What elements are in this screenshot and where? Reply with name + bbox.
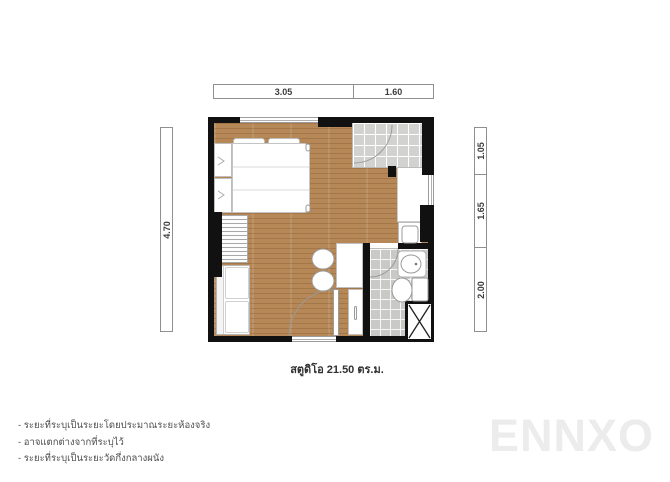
footnote-line: - อาจแตกต่างจากที่ระบุไว้	[18, 435, 210, 452]
dimension-left-1: 4.70	[161, 128, 172, 331]
dimension-top-1: 3.05	[214, 85, 353, 98]
plan-caption: สตูดิโอ 21.50 ตร.ม.	[207, 360, 467, 378]
dimension-right-3: 2.00	[475, 247, 486, 331]
bathroom-door-opening	[370, 243, 398, 249]
dimension-label: 1.05	[476, 142, 486, 160]
outer-wall	[208, 117, 434, 342]
balcony-door-opening	[292, 336, 336, 342]
floor-plan	[208, 117, 434, 342]
dimension-right-2: 1.65	[475, 174, 486, 247]
footnote-line: - ระยะที่ระบุเป็นระยะโดยประมาณระยะห้องจร…	[18, 418, 210, 435]
dimension-bar-left: 4.70	[160, 127, 173, 332]
dimension-label: 1.60	[385, 87, 403, 97]
dimension-bar-top: 3.05 1.60	[213, 84, 434, 99]
dimension-label: 2.00	[476, 281, 486, 299]
window-right	[428, 175, 434, 205]
dimension-label: 4.70	[162, 221, 172, 239]
service-shaft	[405, 301, 434, 342]
window-top	[240, 117, 318, 123]
footnotes: - ระยะที่ระบุเป็นระยะโดยประมาณระยะห้องจร…	[18, 418, 210, 468]
dimension-label: 3.05	[275, 87, 293, 97]
footnote-line: - ระยะที่ระบุเป็นระยะวัดกึ่งกลางผนัง	[18, 451, 210, 468]
dimension-right-1: 1.05	[475, 128, 486, 174]
dimension-label: 1.65	[476, 202, 486, 220]
dimension-bar-right: 1.05 1.65 2.00	[474, 127, 487, 332]
brand-watermark: ENNXO	[489, 413, 654, 458]
dimension-top-2: 1.60	[353, 85, 433, 98]
